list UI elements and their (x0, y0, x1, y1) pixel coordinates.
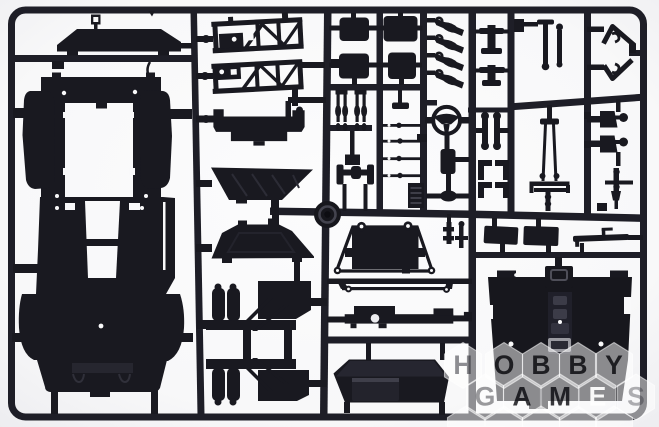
svg-text:M: M (549, 382, 571, 412)
svg-text:O: O (494, 350, 515, 380)
svg-text:S: S (627, 382, 645, 412)
svg-text:A: A (512, 382, 531, 412)
svg-text:E: E (589, 382, 607, 412)
svg-text:B: B (531, 350, 550, 380)
svg-text:G: G (475, 382, 496, 412)
svg-text:Y: Y (605, 350, 623, 380)
svg-text:B: B (568, 350, 587, 380)
svg-text:H: H (453, 350, 472, 380)
